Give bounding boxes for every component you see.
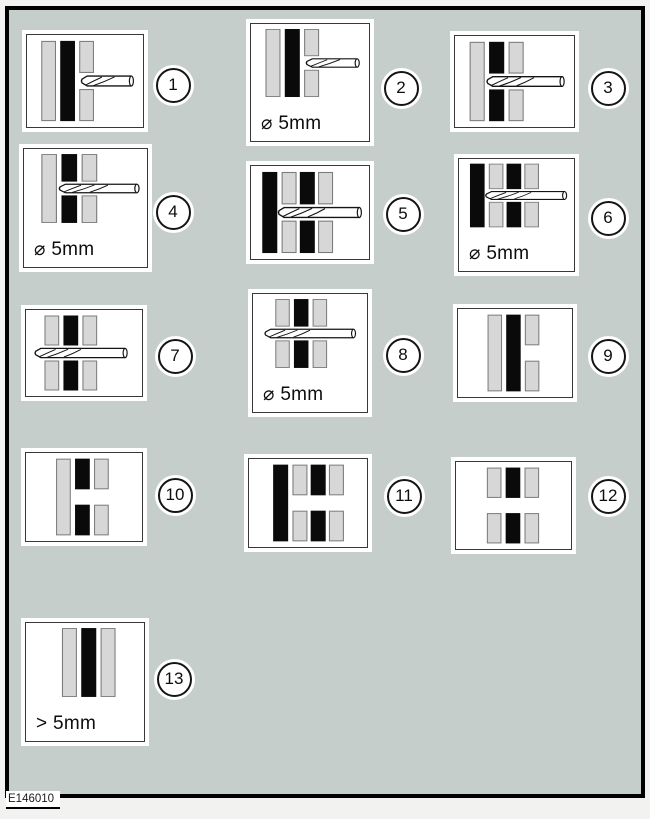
sheet-bar-gray [525, 514, 539, 543]
panel-8-dimension-label: ⌀ 5mm [253, 373, 367, 412]
sheet-bar-black [506, 514, 520, 543]
sheet-bar-gray [83, 361, 97, 390]
step-number: 1 [168, 75, 177, 95]
drill-bit-icon [279, 208, 362, 218]
panel-11-step-badge: 11 [387, 479, 422, 514]
sheet-bar-gray [487, 514, 501, 543]
step-number: 5 [398, 204, 407, 224]
panel-9 [457, 308, 573, 398]
sheet-bar-gray [80, 41, 94, 72]
step-number: 8 [398, 345, 407, 365]
panel-5-sheet-drawing [251, 166, 369, 259]
sheet-bar-black [62, 196, 77, 223]
sheet-bar-black [76, 505, 90, 535]
spot-weld-drilling-diagram: E146010 1⌀ 5mm23⌀ 5mm45⌀ 5mm67⌀ 5mm89101… [0, 0, 650, 819]
sheet-bar-black [64, 316, 78, 345]
drill-bit-icon [265, 329, 355, 337]
sheet-bar-gray [266, 29, 280, 96]
drill-bit-icon [35, 348, 127, 357]
step-number: 6 [603, 208, 612, 228]
step-number: 11 [395, 486, 413, 506]
sheet-bar-gray [525, 315, 538, 345]
drill-bit-icon [486, 192, 567, 200]
panel-6: ⌀ 5mm [458, 158, 575, 272]
panel-3-sheet-drawing [455, 36, 574, 127]
sheet-bar-black [507, 164, 521, 189]
panel-13: > 5mm [25, 622, 145, 742]
panel-10-step-badge: 10 [158, 478, 193, 513]
sheet-bar-gray [305, 70, 319, 96]
sheet-bar-black [300, 221, 314, 252]
panel-4-step-badge: 4 [156, 195, 191, 230]
sheet-bar-black [490, 42, 504, 73]
sheet-bar-black [62, 155, 77, 182]
sheet-bar-gray [45, 361, 59, 390]
sheet-bar-gray [276, 300, 289, 327]
drill-bit-icon [59, 184, 139, 192]
step-number: 7 [170, 346, 179, 366]
sheet-bar-gray [42, 41, 56, 120]
sheet-bar-gray [82, 196, 97, 223]
panel-11-sheet-drawing [249, 459, 367, 547]
panel-5 [250, 165, 370, 260]
sheet-bar-gray [329, 465, 343, 495]
panel-13-sheet-drawing [26, 623, 144, 702]
panel-1-step-badge: 1 [156, 68, 191, 103]
sheet-bar-black [300, 172, 314, 203]
panel-7 [25, 309, 143, 397]
sheet-bar-gray [489, 202, 503, 227]
panel-11 [248, 458, 368, 548]
sheet-bar-gray [95, 459, 109, 489]
panel-12-step-badge: 12 [591, 479, 626, 514]
step-number: 10 [166, 485, 185, 505]
sheet-bar-gray [80, 90, 94, 121]
sheet-bar-black [76, 459, 90, 489]
panel-2-step-badge: 2 [384, 71, 419, 106]
panel-2: ⌀ 5mm [250, 23, 370, 142]
panel-1 [26, 34, 144, 128]
sheet-bar-gray [319, 221, 333, 252]
sheet-bar-black [64, 361, 78, 390]
panel-12-sheet-drawing [456, 462, 571, 549]
sheet-bar-gray [293, 465, 307, 495]
panel-7-step-badge: 7 [158, 339, 193, 374]
panel-8-step-badge: 8 [386, 338, 421, 373]
sheet-bar-gray [329, 511, 343, 541]
panel-4-dimension-label: ⌀ 5mm [24, 228, 147, 267]
step-number: 4 [168, 202, 177, 222]
sheet-bar-gray [313, 341, 326, 368]
sheet-bar-gray [83, 316, 97, 345]
sheet-bar-black [82, 629, 96, 697]
sheet-bar-gray [282, 221, 296, 252]
sheet-bar-gray [470, 42, 484, 120]
panel-1-sheet-drawing [27, 35, 143, 127]
panel-7-sheet-drawing [26, 310, 142, 396]
panel-13-dimension-label: > 5mm [26, 702, 144, 741]
panel-6-dimension-label: ⌀ 5mm [459, 232, 574, 271]
step-number: 9 [603, 346, 612, 366]
step-number: 12 [599, 486, 618, 506]
sheet-bar-black [311, 511, 325, 541]
sheet-bar-gray [82, 155, 97, 182]
panel-2-sheet-drawing [251, 24, 369, 102]
drill-bit-icon [306, 59, 359, 67]
sheet-bar-gray [276, 341, 289, 368]
step-number: 3 [603, 78, 612, 98]
drill-bit-icon [487, 77, 564, 87]
sheet-bar-gray [62, 629, 76, 697]
panel-3-step-badge: 3 [591, 71, 626, 106]
sheet-bar-gray [488, 315, 501, 391]
sheet-bar-black [507, 315, 520, 391]
step-number: 13 [165, 669, 184, 689]
sheet-bar-gray [509, 42, 523, 73]
panel-9-sheet-drawing [458, 309, 572, 397]
sheet-bar-black [61, 41, 75, 120]
drill-bit-icon [81, 76, 133, 86]
sheet-bar-gray [42, 155, 57, 223]
panel-10-sheet-drawing [26, 453, 142, 541]
panel-8: ⌀ 5mm [252, 293, 368, 413]
sheet-bar-gray [282, 172, 296, 203]
panel-10 [25, 452, 143, 542]
sheet-bar-black [507, 202, 521, 227]
sheet-bar-gray [489, 164, 503, 189]
step-number: 2 [396, 78, 405, 98]
sheet-bar-gray [305, 29, 319, 55]
sheet-bar-gray [95, 505, 109, 535]
sheet-bar-black [274, 465, 288, 541]
sheet-bar-gray [45, 316, 59, 345]
sheet-bar-gray [525, 202, 539, 227]
sheet-bar-black [294, 341, 307, 368]
sheet-bar-gray [293, 511, 307, 541]
panel-5-step-badge: 5 [386, 197, 421, 232]
sheet-bar-gray [313, 300, 326, 327]
sheet-bar-black [285, 29, 299, 96]
sheet-bar-black [311, 465, 325, 495]
panel-3 [454, 35, 575, 128]
sheet-bar-black [490, 90, 504, 121]
sheet-bar-gray [57, 459, 71, 535]
panel-4-sheet-drawing [24, 149, 147, 228]
sheet-bar-gray [525, 468, 539, 497]
sheet-bar-gray [509, 90, 523, 121]
panel-2-dimension-label: ⌀ 5mm [251, 102, 369, 141]
figure-code: E146010 [6, 791, 60, 809]
sheet-bar-black [263, 172, 277, 252]
sheet-bar-gray [525, 164, 539, 189]
panel-12 [455, 461, 572, 550]
panel-6-sheet-drawing [459, 159, 574, 232]
sheet-bar-black [471, 164, 485, 227]
sheet-bar-gray [319, 172, 333, 203]
sheet-bar-gray [101, 629, 115, 697]
panel-13-step-badge: 13 [157, 662, 192, 697]
panel-9-step-badge: 9 [591, 339, 626, 374]
panel-8-sheet-drawing [253, 294, 367, 373]
panel-6-step-badge: 6 [591, 201, 626, 236]
sheet-bar-gray [525, 361, 538, 391]
panel-4: ⌀ 5mm [23, 148, 148, 268]
sheet-bar-black [506, 468, 520, 497]
sheet-bar-black [294, 300, 307, 327]
sheet-bar-gray [487, 468, 501, 497]
